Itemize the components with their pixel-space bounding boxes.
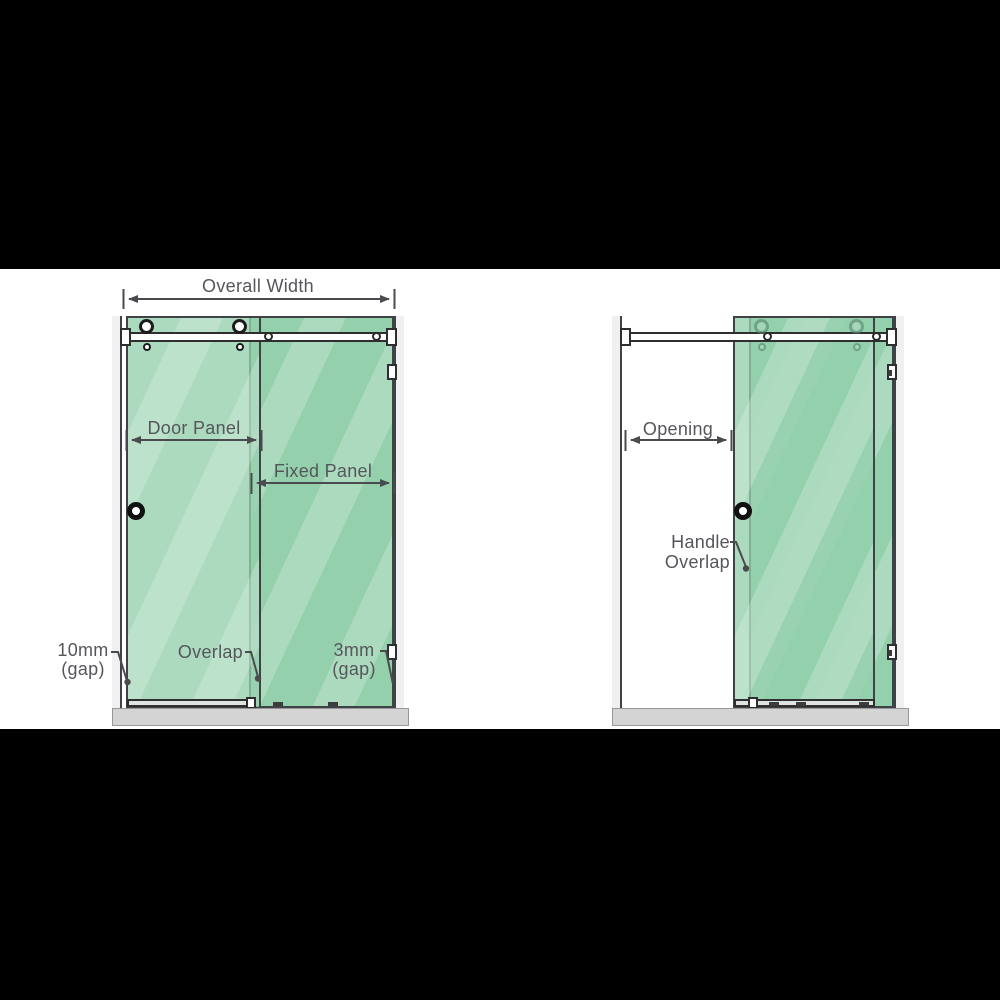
- gap-10mm-label: 10mm (gap): [54, 641, 112, 679]
- handle-overlap-line1: Handle: [656, 532, 730, 552]
- rail-end-cap-left: [120, 328, 131, 346]
- handle-overlap-line2: Overlap: [656, 552, 730, 572]
- panel-clamp: [273, 702, 283, 706]
- handle-overlap-label: Handle Overlap: [656, 532, 730, 572]
- door-handle-knob: [734, 502, 752, 520]
- wall-bracket: [887, 364, 897, 380]
- diagram-canvas: Overall Width Door Panel Fixed Panel 10m…: [0, 0, 1000, 1000]
- rail-mount-icon: [372, 332, 381, 341]
- roller-stopper-icon: [143, 343, 151, 351]
- door-bottom-guide: [127, 699, 252, 707]
- rail-mount-icon: [872, 332, 881, 341]
- wall-bracket: [887, 644, 897, 660]
- rail-end-cap-right: [886, 328, 897, 346]
- glass-reflection: [735, 318, 873, 707]
- roller-stopper-icon: [236, 343, 244, 351]
- wall-bracket: [387, 644, 397, 660]
- roller-stopper-ghost-icon: [758, 343, 766, 351]
- left-wall: [612, 316, 622, 708]
- overlap-label: Overlap: [171, 643, 243, 662]
- gap-3mm-unit: (gap): [328, 660, 380, 679]
- door-handle-knob: [127, 502, 145, 520]
- bracket-screw-icon: [888, 370, 892, 376]
- rail-mount-icon: [264, 332, 273, 341]
- panel-clamp: [769, 702, 779, 706]
- roller-stopper-ghost-icon: [853, 343, 861, 351]
- panel-clamp: [859, 702, 869, 706]
- overall-width-label: Overall Width: [168, 277, 348, 296]
- gap-3mm-label: 3mm (gap): [328, 641, 380, 679]
- letterbox-top: [0, 0, 1000, 269]
- rail-mount-icon: [763, 332, 772, 341]
- letterbox-bottom: [0, 729, 1000, 1000]
- gap-3mm-value: 3mm: [328, 641, 380, 660]
- wall-bracket: [387, 364, 397, 380]
- top-rail: [121, 332, 397, 342]
- gap-10mm-unit: (gap): [54, 660, 112, 679]
- panel-clamp: [796, 702, 806, 706]
- shower-base-tray: [112, 708, 409, 726]
- roller-ghost-icon: [849, 319, 864, 334]
- panel-clamp: [328, 702, 338, 706]
- fixed-panel-label: Fixed Panel: [252, 462, 394, 481]
- door-panel-glass-open: [733, 316, 875, 709]
- bracket-screw-icon: [888, 650, 892, 656]
- opening-label: Opening: [638, 420, 718, 439]
- roller-icon: [139, 319, 154, 334]
- roller-icon: [232, 319, 247, 334]
- gap-10mm-value: 10mm: [54, 641, 112, 660]
- rail-end-cap-left: [620, 328, 631, 346]
- door-panel-label: Door Panel: [124, 419, 264, 438]
- shower-base-tray: [612, 708, 909, 726]
- rail-end-cap-right: [386, 328, 397, 346]
- left-wall: [112, 316, 122, 708]
